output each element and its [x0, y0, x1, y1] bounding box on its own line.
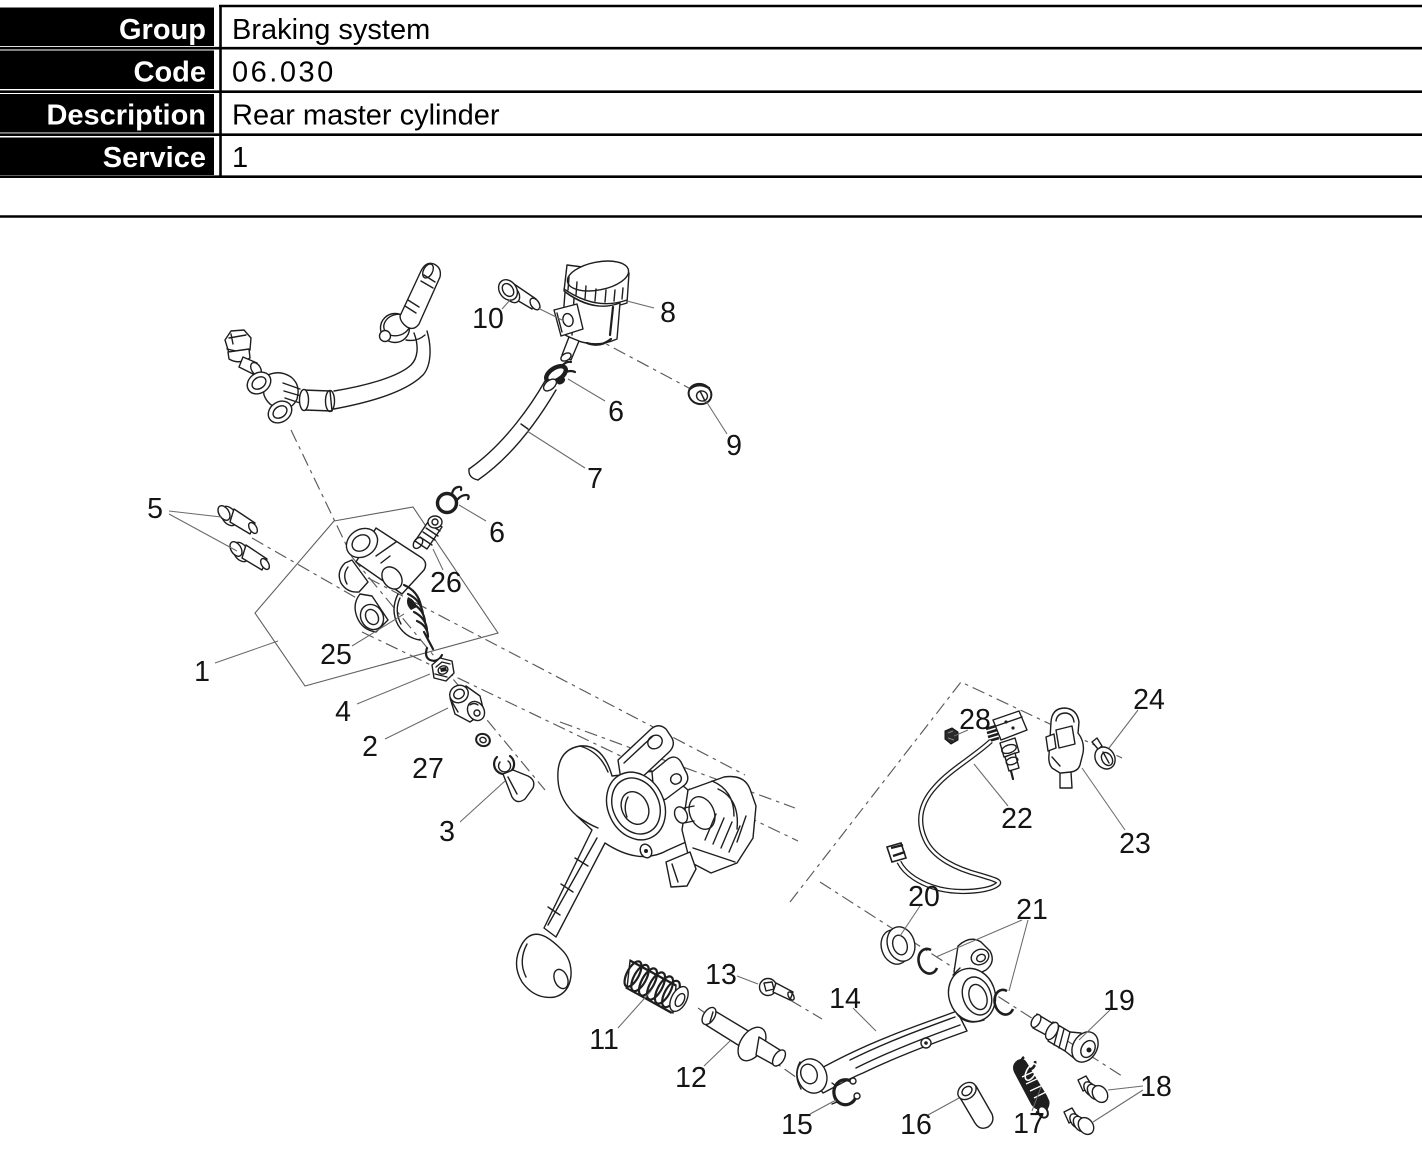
svg-text:Code: Code	[134, 57, 207, 89]
svg-text:24: 24	[1133, 684, 1165, 716]
svg-text:6: 6	[608, 396, 624, 428]
svg-text:12: 12	[675, 1062, 707, 1094]
svg-text:5: 5	[147, 493, 163, 525]
svg-text:Group: Group	[119, 14, 206, 46]
svg-text:10: 10	[472, 303, 504, 335]
svg-text:1: 1	[232, 142, 248, 174]
svg-text:27: 27	[412, 753, 444, 785]
svg-text:19: 19	[1103, 985, 1135, 1017]
svg-text:26: 26	[430, 567, 462, 599]
svg-text:18: 18	[1140, 1071, 1172, 1103]
svg-text:21: 21	[1016, 894, 1048, 926]
svg-text:17: 17	[1013, 1108, 1045, 1140]
svg-text:13: 13	[705, 959, 737, 991]
svg-text:11: 11	[589, 1024, 619, 1056]
svg-text:28: 28	[959, 704, 991, 736]
svg-text:3: 3	[439, 816, 455, 848]
svg-text:4: 4	[335, 696, 351, 728]
svg-text:15: 15	[781, 1109, 813, 1141]
svg-text:14: 14	[829, 983, 861, 1015]
svg-text:2: 2	[362, 731, 378, 763]
svg-text:23: 23	[1119, 828, 1151, 860]
svg-text:Service: Service	[103, 142, 206, 174]
svg-text:9: 9	[726, 430, 742, 462]
svg-text:1: 1	[194, 656, 210, 688]
svg-text:20: 20	[908, 881, 940, 913]
svg-text:16: 16	[900, 1109, 932, 1141]
svg-text:Rear master cylinder: Rear master cylinder	[232, 100, 500, 132]
svg-text:Description: Description	[46, 100, 206, 132]
svg-text:06.030: 06.030	[232, 57, 336, 89]
svg-text:25: 25	[320, 639, 352, 671]
svg-text:22: 22	[1001, 803, 1033, 835]
svg-text:Braking system: Braking system	[232, 14, 430, 46]
svg-text:6: 6	[489, 517, 505, 549]
svg-text:7: 7	[587, 463, 603, 495]
svg-text:8: 8	[660, 297, 676, 329]
